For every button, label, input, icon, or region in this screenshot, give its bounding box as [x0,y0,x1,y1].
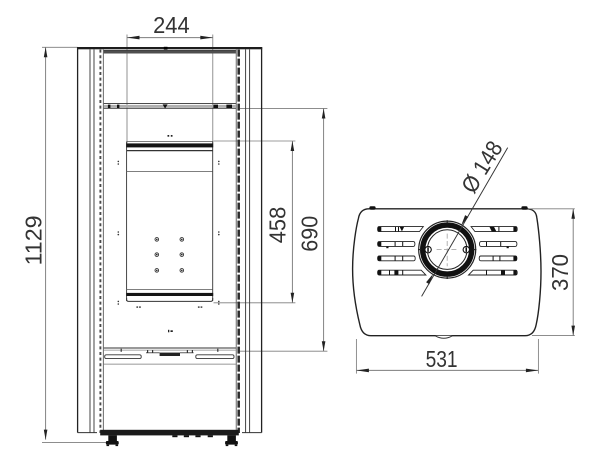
svg-text:244: 244 [153,12,190,38]
svg-text:690: 690 [297,216,323,252]
svg-text:370: 370 [547,254,573,291]
svg-text:531: 531 [426,346,458,372]
svg-text:1129: 1129 [21,215,47,265]
svg-text:458: 458 [265,207,291,244]
